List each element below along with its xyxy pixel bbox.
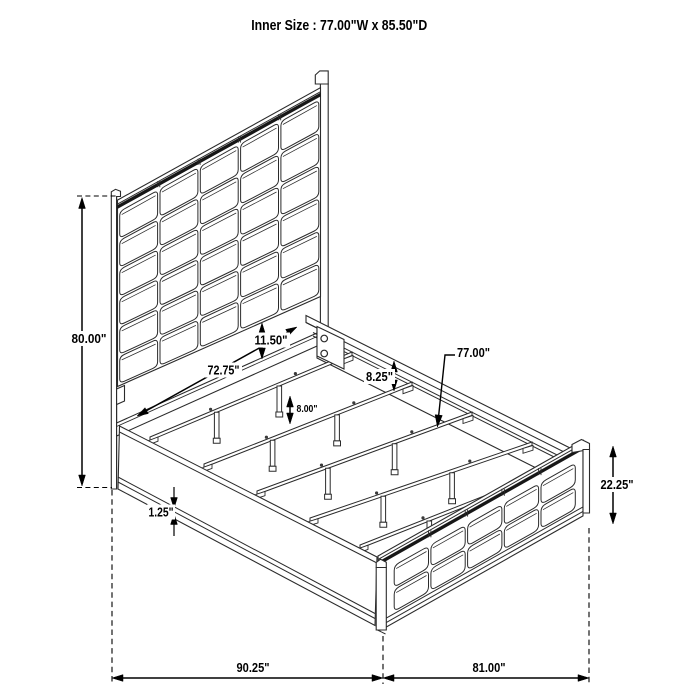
svg-text:8.25": 8.25" <box>366 369 393 384</box>
svg-text:72.75": 72.75" <box>208 363 240 378</box>
svg-text:Inner Size : 77.00"W x 85.50"D: Inner Size : 77.00"W x 85.50"D <box>251 18 427 34</box>
svg-text:22.25": 22.25" <box>601 477 634 492</box>
svg-text:1.25": 1.25" <box>149 505 174 520</box>
svg-text:11.50": 11.50" <box>255 333 288 348</box>
svg-text:8.00": 8.00" <box>297 403 318 415</box>
svg-text:77.00": 77.00" <box>457 345 490 360</box>
svg-text:80.00": 80.00" <box>72 331 107 346</box>
svg-text:90.25": 90.25" <box>237 660 270 675</box>
svg-text:81.00": 81.00" <box>473 660 506 675</box>
